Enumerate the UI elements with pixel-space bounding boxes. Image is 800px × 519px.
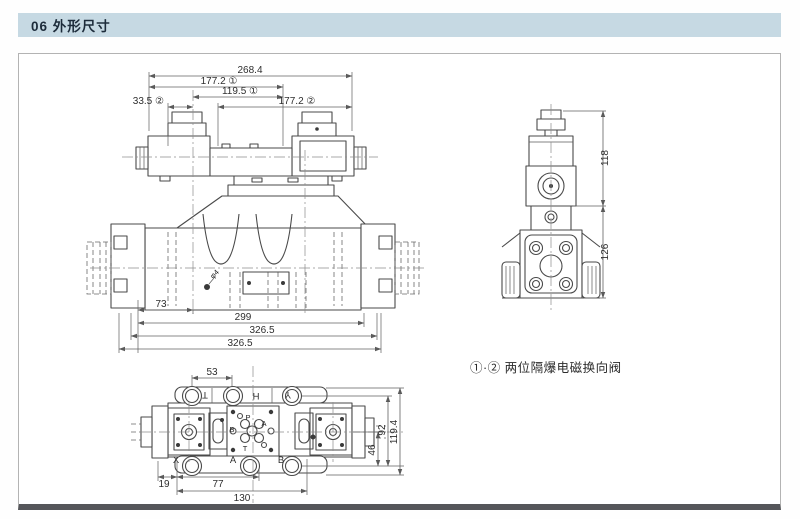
dim-177-2: 177.2 ② (279, 96, 316, 107)
side-view-drawing: 118 126 (495, 100, 625, 350)
dim-118: 118 (600, 150, 611, 166)
section-title: 06 外形尺寸 (18, 15, 111, 35)
port-label-y: Y (284, 389, 291, 400)
port-label-b: B (278, 455, 284, 466)
front-pilot-solenoids (136, 112, 366, 182)
dim-77: 77 (212, 479, 224, 490)
dim-overall-width: 268.4 (237, 65, 262, 76)
dim-326-a: 326.5 (249, 325, 274, 336)
dim-326-b: 326.5 (227, 338, 252, 349)
port-label-t: T (202, 389, 208, 400)
port-label-h: H (252, 390, 259, 401)
face-port-t: T (243, 444, 248, 453)
front-valve-body (87, 176, 419, 310)
dim-53: 53 (206, 367, 218, 378)
bottom-view-drawing: T H Y X A B P A B T 53 46 92 119.4 (130, 358, 422, 508)
dim-126: 126 (600, 243, 611, 260)
dim-130: 130 (234, 493, 251, 504)
dim-33-2: 33.5 ② (133, 96, 164, 107)
dim-119: 119.4 (389, 419, 400, 444)
note-label: ①·② 两位隔爆电磁换向阀 (470, 361, 622, 375)
port-label-x: X (173, 455, 180, 466)
dim-19: 19 (158, 479, 170, 490)
page: 06 外形尺寸 (0, 0, 800, 519)
dim-92: 92 (377, 424, 388, 436)
section-header: 06 外形尺寸 (18, 13, 781, 37)
face-port-p: P (245, 413, 250, 422)
front-view-drawing: 268.4 177.2 ① 119.5 ① 33.5 ② 177.2 ② 73 … (60, 58, 440, 358)
dim-119-1: 119.5 ① (222, 86, 258, 97)
note-text: ①·② 两位隔爆电磁换向阀 (470, 357, 622, 376)
dim-46: 46 (367, 444, 378, 456)
face-port-b: B (229, 425, 234, 434)
port-label-a: A (230, 455, 237, 466)
dim-299: 299 (235, 312, 252, 323)
dim-73: 73 (155, 299, 167, 310)
face-port-a: A (261, 419, 266, 428)
